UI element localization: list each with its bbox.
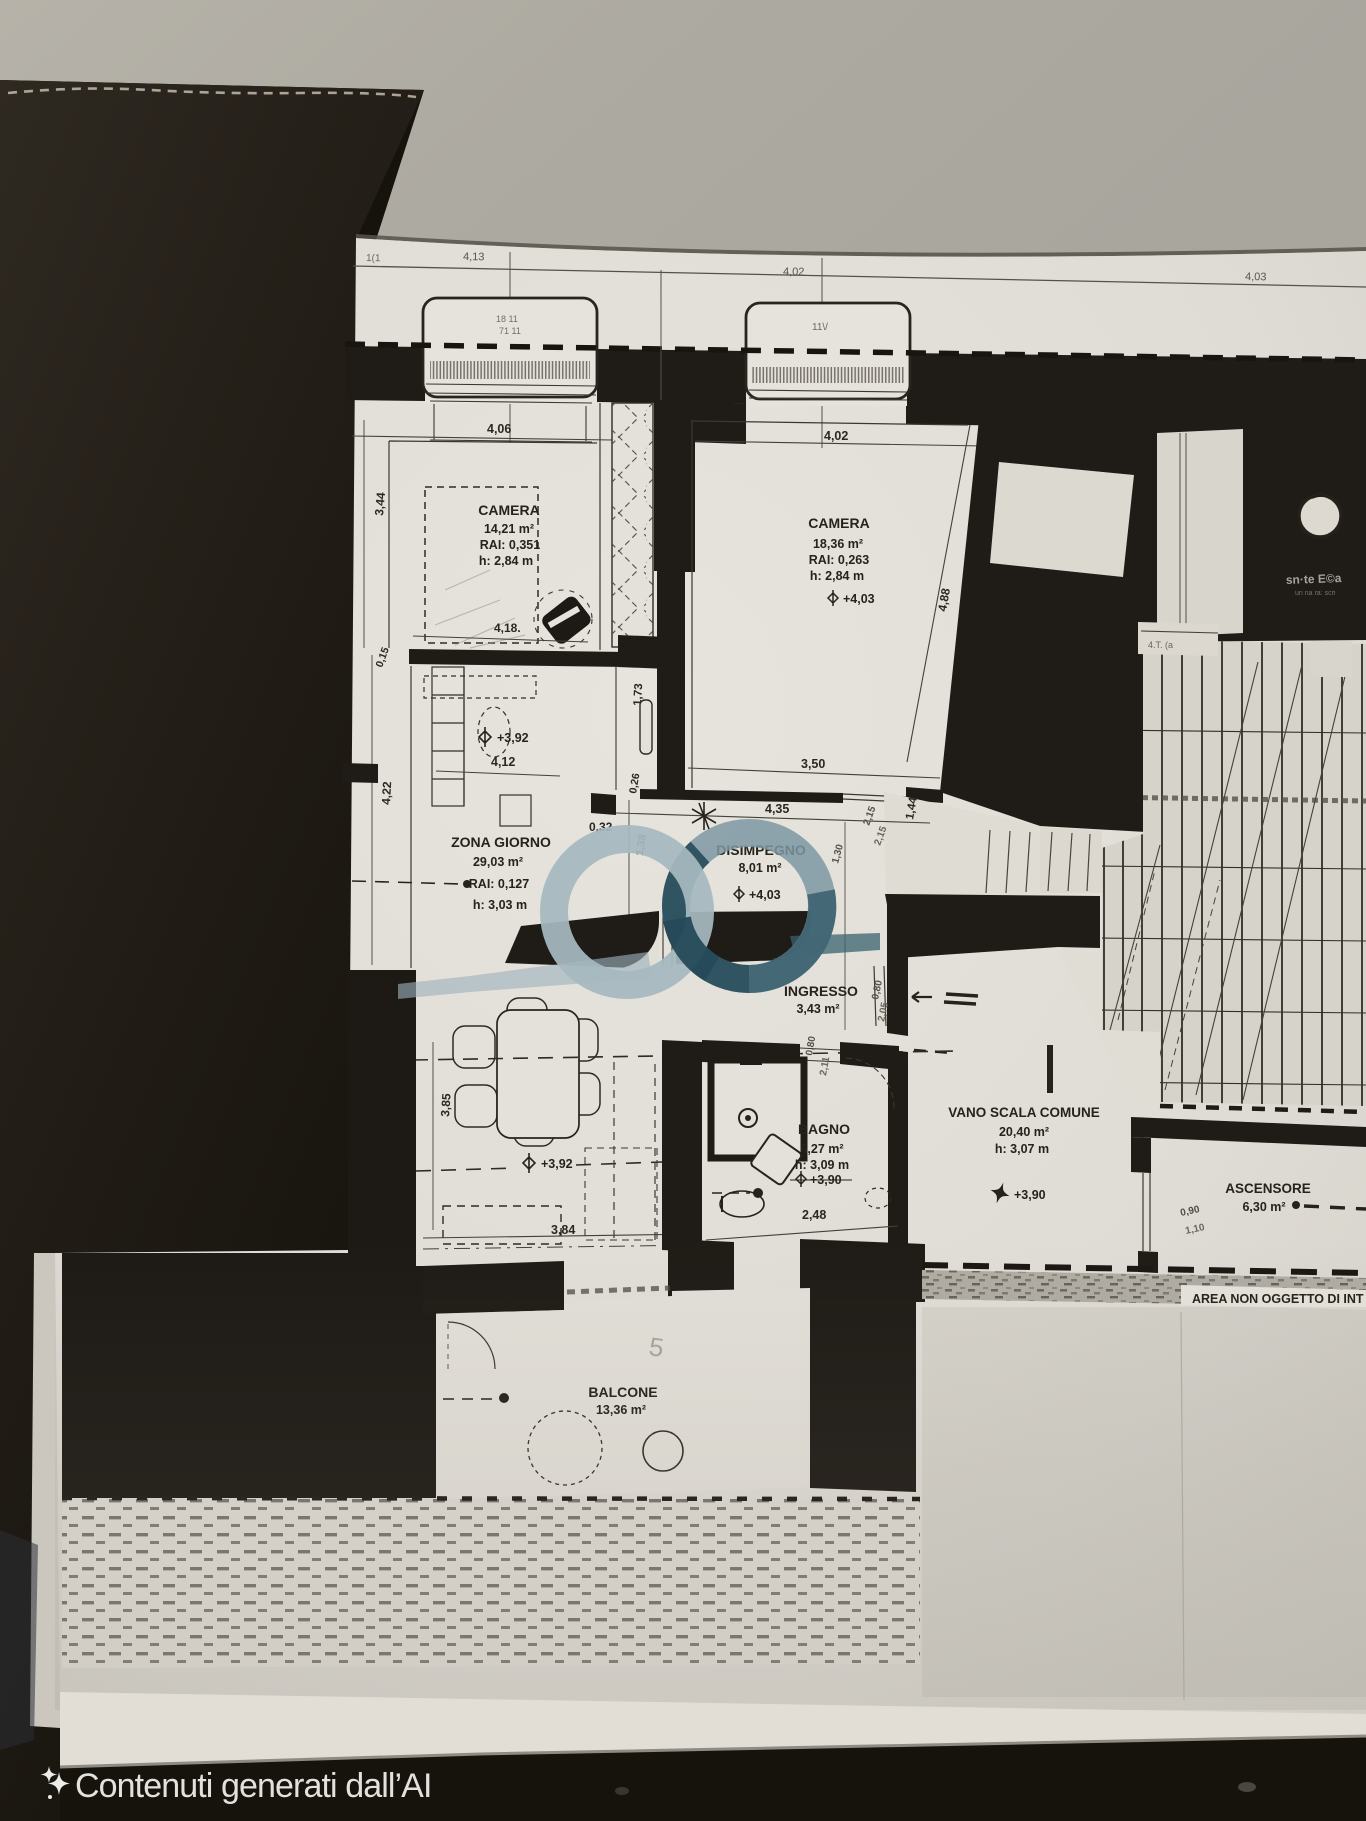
svg-text:ZONA GIORNO: ZONA GIORNO <box>451 834 551 850</box>
svg-text:6,27 m²: 6,27 m² <box>800 1142 843 1156</box>
svg-text:71 11: 71 11 <box>499 326 521 336</box>
svg-text:3,50: 3,50 <box>801 757 825 771</box>
svg-text:h: 2,84 m: h: 2,84 m <box>810 569 864 583</box>
svg-text:+3,90: +3,90 <box>1014 1188 1046 1202</box>
svg-text:3,44: 3,44 <box>372 491 388 516</box>
svg-text:INGRESSO: INGRESSO <box>784 983 858 999</box>
svg-text:3,43 m²: 3,43 m² <box>796 1002 839 1016</box>
svg-text:RAI: 0,351: RAI: 0,351 <box>480 538 540 552</box>
svg-text:h: 3,07 m: h: 3,07 m <box>995 1142 1049 1156</box>
svg-text:Contenuti generati dall’AI: Contenuti generati dall’AI <box>75 1767 432 1805</box>
svg-text:18,36 m²: 18,36 m² <box>813 537 863 551</box>
svg-text:h: 3,09 m: h: 3,09 m <box>795 1158 849 1172</box>
svg-text:CAMERA: CAMERA <box>808 515 869 531</box>
svg-text:4,22: 4,22 <box>379 781 394 805</box>
svg-text:RAI: 0,127: RAI: 0,127 <box>469 877 529 891</box>
svg-text:4,02: 4,02 <box>824 429 848 443</box>
svg-text:3,85: 3,85 <box>438 1093 454 1118</box>
svg-text:4,06: 4,06 <box>487 422 511 436</box>
svg-text:4,03: 4,03 <box>1245 271 1267 283</box>
svg-text:h: 2,84 m: h: 2,84 m <box>479 554 533 568</box>
svg-text:3,84: 3,84 <box>551 1223 575 1237</box>
svg-text:ASCENSORE: ASCENSORE <box>1225 1181 1311 1196</box>
svg-text:4,35: 4,35 <box>765 802 789 816</box>
svg-text:2,48: 2,48 <box>802 1208 826 1222</box>
svg-text:20,40 m²: 20,40 m² <box>999 1125 1049 1139</box>
svg-text:un na ra: scri: un na ra: scri <box>1295 590 1336 597</box>
svg-text:+4,03: +4,03 <box>843 592 875 606</box>
svg-text:+3,92: +3,92 <box>541 1157 573 1171</box>
svg-text:4,13: 4,13 <box>463 251 485 263</box>
svg-text:sn·te E©a: sn·te E©a <box>1286 571 1342 587</box>
svg-text:+3,92: +3,92 <box>497 731 529 745</box>
svg-text:8,01 m²: 8,01 m² <box>738 861 781 875</box>
svg-text:RAI: 0,263: RAI: 0,263 <box>809 553 869 567</box>
svg-text:VANO SCALA COMUNE: VANO SCALA COMUNE <box>948 1105 1100 1120</box>
svg-text:4,18.: 4,18. <box>494 621 521 635</box>
svg-text:11\/: 11\/ <box>812 322 828 333</box>
svg-text:4,02: 4,02 <box>783 266 805 278</box>
svg-text:CAMERA: CAMERA <box>478 502 539 518</box>
svg-text:BAGNO: BAGNO <box>798 1121 850 1137</box>
svg-text:4,12: 4,12 <box>491 755 515 769</box>
svg-text:6,30 m²: 6,30 m² <box>1242 1200 1285 1214</box>
svg-text:29,03 m²: 29,03 m² <box>473 855 523 869</box>
svg-text:18 11: 18 11 <box>496 314 518 324</box>
svg-text:+4,03: +4,03 <box>749 888 781 902</box>
svg-text:14,21 m²: 14,21 m² <box>484 522 534 536</box>
svg-text:h: 3,03 m: h: 3,03 m <box>473 898 527 912</box>
svg-text:1(1: 1(1 <box>366 253 381 264</box>
svg-text:4.T. (a: 4.T. (a <box>1148 640 1173 650</box>
